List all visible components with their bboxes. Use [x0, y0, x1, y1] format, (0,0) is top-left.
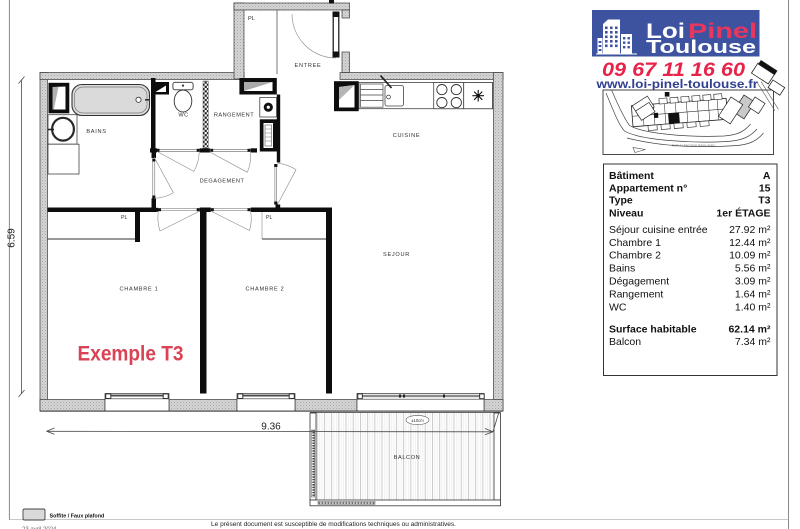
svg-text:PL: PL — [121, 215, 127, 221]
svg-text:27.92 m²: 27.92 m² — [729, 224, 771, 236]
svg-text:Niveau: Niveau — [609, 208, 643, 220]
svg-text:Exemple T3: Exemple T3 — [78, 342, 184, 366]
svg-text:Dégagement: Dégagement — [609, 276, 669, 288]
svg-text:www.loi-pinel-toulouse.fr: www.loi-pinel-toulouse.fr — [595, 77, 758, 91]
svg-text:BALCON: BALCON — [394, 455, 421, 461]
svg-text:RANGEMENT: RANGEMENT — [214, 113, 254, 119]
svg-text:Séjour cuisine entrée: Séjour cuisine entrée — [609, 224, 708, 236]
svg-text:Surface habitable: Surface habitable — [609, 324, 697, 336]
svg-text:Balcon: Balcon — [609, 336, 641, 348]
svg-text:6.59: 6.59 — [7, 228, 18, 248]
svg-text:3.09 m²: 3.09 m² — [735, 276, 771, 288]
svg-text:1er ÉTAGE: 1er ÉTAGE — [716, 207, 770, 220]
svg-text:62.14 m²: 62.14 m² — [728, 324, 771, 336]
svg-text:Chambre 1: Chambre 1 — [609, 237, 661, 249]
svg-text:15: 15 — [759, 183, 771, 195]
svg-text:1.40 m²: 1.40 m² — [735, 302, 771, 314]
svg-text:PL: PL — [266, 215, 272, 221]
svg-text:Toulouse: Toulouse — [646, 36, 756, 57]
svg-text:10.09 m²: 10.09 m² — [729, 250, 771, 262]
svg-text:WC: WC — [609, 302, 627, 314]
svg-text:Bâtiment: Bâtiment — [609, 170, 654, 182]
svg-text:SEJOUR: SEJOUR — [383, 252, 410, 258]
svg-text:DEGAGEMENT: DEGAGEMENT — [200, 179, 245, 185]
svg-text:Type: Type — [609, 195, 633, 207]
svg-text:Appartement n°: Appartement n° — [609, 183, 687, 195]
svg-text:Le présent document est suscep: Le présent document est susceptible de m… — [211, 521, 456, 528]
svg-text:A: A — [763, 170, 771, 182]
svg-text:WC: WC — [178, 113, 188, 119]
svg-text:CHAMBRE 1: CHAMBRE 1 — [120, 287, 159, 293]
svg-text:7.34 m²: 7.34 m² — [735, 336, 771, 348]
svg-text:Bains: Bains — [609, 263, 635, 275]
svg-text:Soffite / Faux plafond: Soffite / Faux plafond — [50, 514, 105, 520]
svg-text:12.44 m²: 12.44 m² — [729, 237, 771, 249]
svg-text:T3: T3 — [758, 195, 770, 207]
svg-text:5.56 m²: 5.56 m² — [735, 263, 771, 275]
svg-text:CUISINE: CUISINE — [393, 133, 421, 139]
svg-text:RUE ALPHONSE BROUDIEU: RUE ALPHONSE BROUDIEU — [672, 144, 716, 148]
svg-text:9.36: 9.36 — [261, 422, 281, 433]
svg-text:±10cm: ±10cm — [411, 418, 424, 423]
svg-text:Rangement: Rangement — [609, 289, 663, 301]
svg-text:ENTREE: ENTREE — [295, 63, 322, 69]
svg-text:PL: PL — [248, 16, 255, 22]
svg-text:Chambre 2: Chambre 2 — [609, 250, 661, 262]
svg-text:CHAMBRE 2: CHAMBRE 2 — [246, 287, 285, 293]
svg-text:1.64 m²: 1.64 m² — [735, 289, 771, 301]
svg-text:BAINS: BAINS — [86, 129, 106, 135]
